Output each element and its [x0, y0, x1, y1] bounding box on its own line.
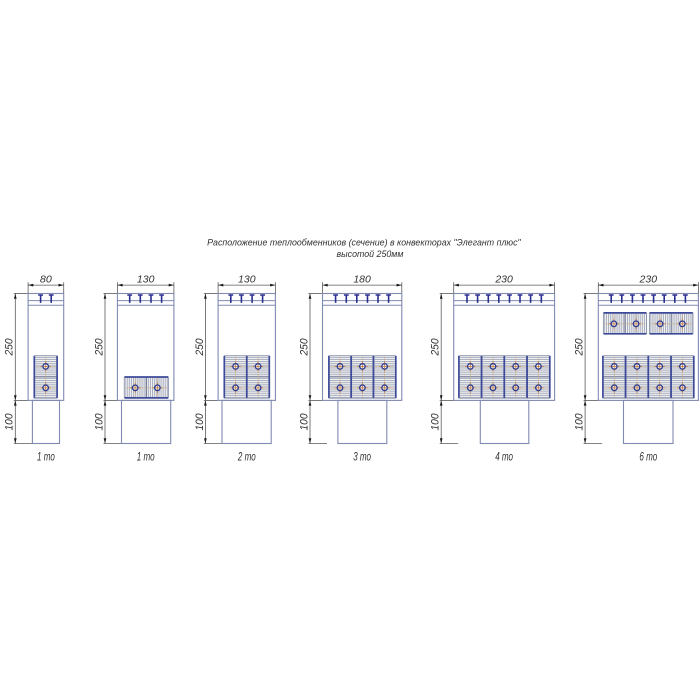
svg-text:100: 100: [430, 413, 442, 431]
svg-text:180: 180: [353, 275, 371, 286]
svg-text:250: 250: [93, 338, 105, 357]
svg-text:250: 250: [430, 338, 442, 357]
svg-text:100: 100: [298, 413, 310, 431]
svg-text:1 то: 1 то: [137, 450, 155, 464]
svg-text:250: 250: [194, 338, 206, 357]
svg-text:4 то: 4 то: [495, 450, 513, 464]
svg-text:230: 230: [639, 275, 658, 286]
svg-text:100: 100: [93, 413, 105, 431]
svg-text:250: 250: [298, 338, 310, 357]
svg-text:3 то: 3 то: [353, 450, 371, 464]
svg-text:2 то: 2 то: [237, 450, 256, 464]
svg-text:250: 250: [574, 338, 586, 357]
svg-text:100: 100: [194, 413, 206, 431]
svg-text:100: 100: [4, 413, 16, 431]
svg-text:высотой 250мм: высотой 250мм: [337, 249, 404, 259]
svg-text:230: 230: [494, 275, 513, 286]
svg-text:130: 130: [238, 275, 256, 286]
svg-text:130: 130: [137, 275, 155, 286]
svg-text:1 то: 1 то: [37, 450, 55, 464]
svg-text:100: 100: [574, 413, 586, 431]
svg-text:6 то: 6 то: [639, 450, 657, 464]
svg-text:250: 250: [4, 338, 16, 357]
svg-text:Расположение теплообменников (: Расположение теплообменников (сечение) в…: [207, 238, 521, 248]
svg-text:80: 80: [40, 275, 52, 286]
